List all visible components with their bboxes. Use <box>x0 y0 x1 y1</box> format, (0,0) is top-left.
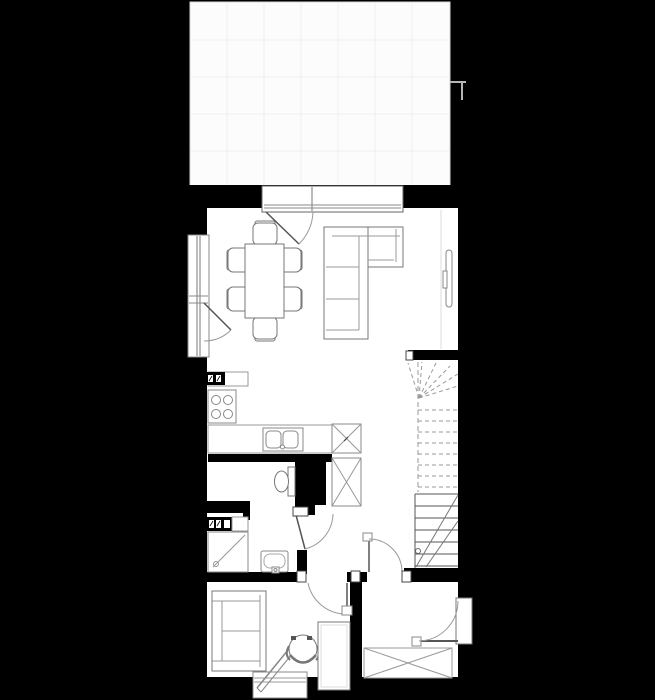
terrace-floor <box>190 2 450 186</box>
entry-door-bracket <box>412 637 421 646</box>
floor-plan-canvas <box>0 0 655 700</box>
jamb-cap-hall-right <box>402 571 411 582</box>
jamb-cap-bath <box>293 507 308 516</box>
bath-counter <box>232 517 248 531</box>
wall-bath-bottom <box>207 572 305 582</box>
dining-chair-top <box>253 223 277 245</box>
stove <box>208 390 236 423</box>
wall-toilet-right <box>295 456 326 505</box>
dining-table <box>245 244 284 318</box>
stair-newel <box>416 549 421 554</box>
jamb-cap-hall-left <box>351 571 360 582</box>
toilet-cistern <box>288 467 295 496</box>
wall-stair-stub <box>408 350 458 360</box>
desk-chair-tip1 <box>291 636 296 640</box>
wardrobe <box>318 622 350 690</box>
jamb-cap-stair-stub <box>406 351 413 360</box>
radiator-bracket <box>443 271 447 288</box>
wall-bath-inner <box>207 501 250 513</box>
toilet-bowl <box>275 471 289 492</box>
dining-chair-bottom <box>253 317 277 339</box>
jamb-cap-study-left <box>297 571 306 582</box>
floor-plan-svg <box>0 0 655 700</box>
desk-chair-tip2 <box>307 636 312 640</box>
entry-door-frame <box>456 598 472 644</box>
bath-panel-sq3 <box>224 520 230 528</box>
wall-hall-study <box>350 582 362 677</box>
hall-door-bracket <box>363 533 372 541</box>
wall-under-stairs <box>404 568 458 582</box>
sofa-left-section <box>324 227 368 339</box>
wall-basin-stub <box>297 550 307 574</box>
desk-bay <box>253 672 307 698</box>
study-door-bracket <box>342 606 352 615</box>
kitchen-faucet <box>281 445 285 449</box>
washbasin-tap <box>272 567 279 573</box>
